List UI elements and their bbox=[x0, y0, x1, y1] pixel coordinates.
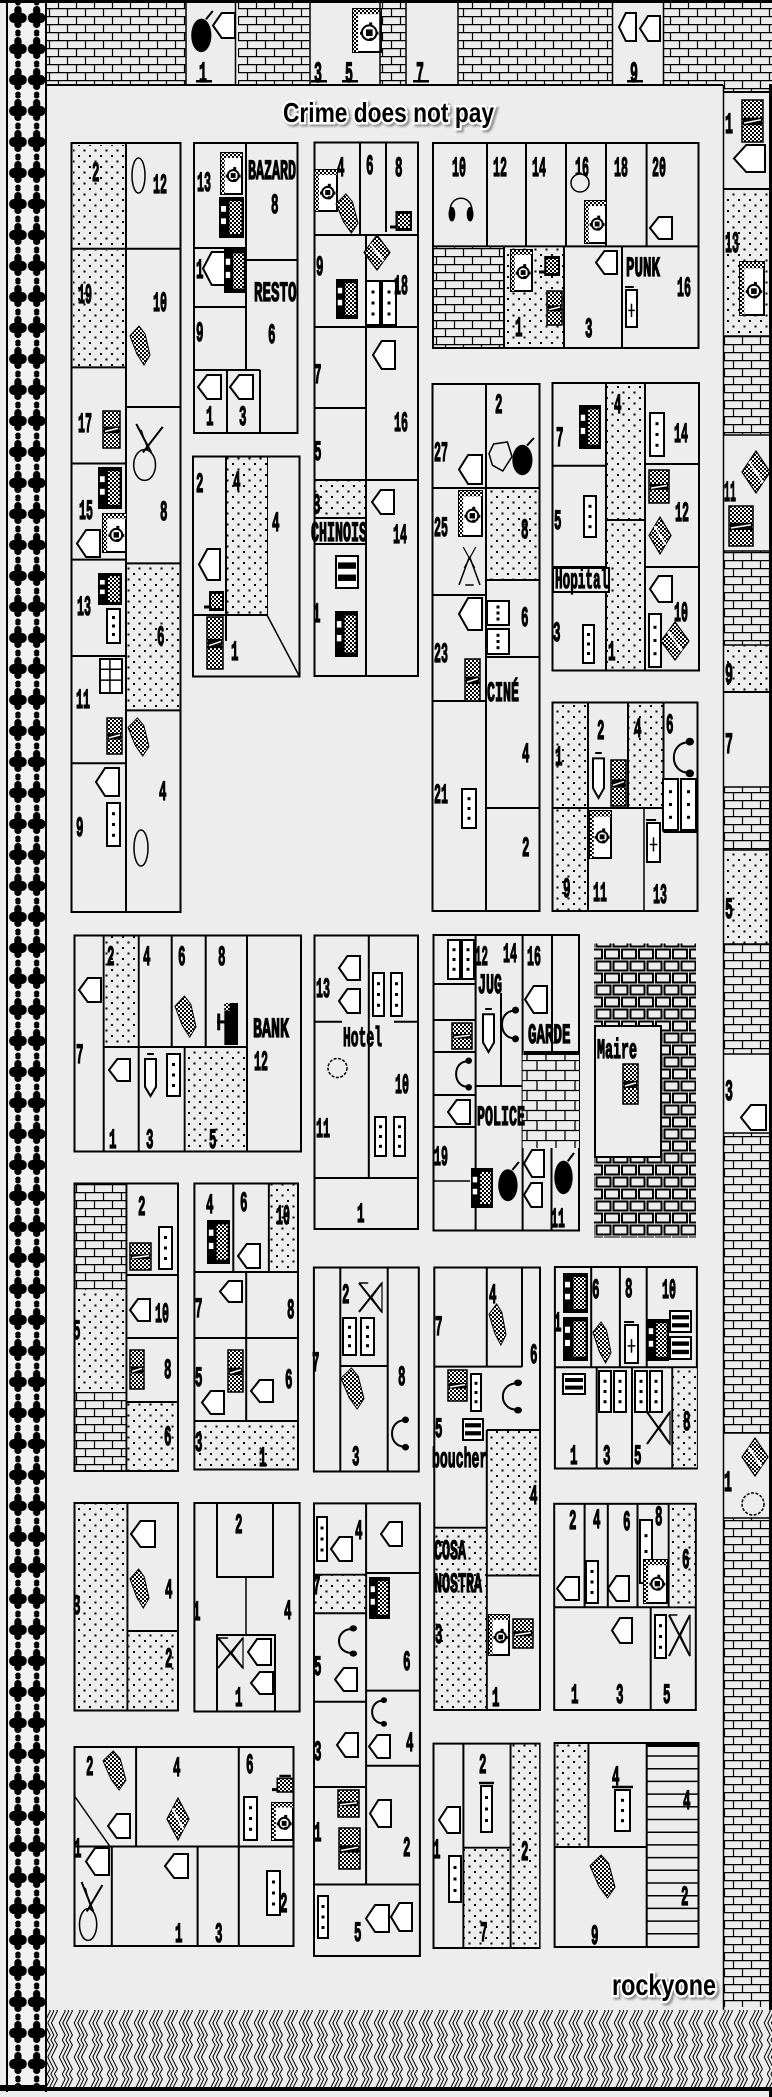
svg-text:19: 19 bbox=[78, 281, 92, 312]
svg-text:2: 2 bbox=[165, 1645, 173, 1676]
svg-text:3: 3 bbox=[585, 315, 593, 346]
svg-text:boucher: boucher bbox=[432, 1445, 487, 1476]
svg-text:BAZARD: BAZARD bbox=[248, 157, 296, 188]
svg-text:Hotel: Hotel bbox=[343, 1024, 382, 1055]
svg-text:5: 5 bbox=[195, 1364, 203, 1395]
svg-text:6: 6 bbox=[240, 1189, 248, 1220]
svg-text:6: 6 bbox=[666, 711, 674, 742]
svg-text:BANK: BANK bbox=[253, 1015, 289, 1046]
svg-text:23: 23 bbox=[434, 640, 448, 671]
svg-text:RESTO: RESTO bbox=[254, 279, 297, 310]
svg-text:Crime does not pay: Crime does not pay bbox=[283, 97, 494, 128]
svg-text:1: 1 bbox=[74, 1835, 82, 1866]
svg-text:9: 9 bbox=[725, 659, 733, 693]
svg-text:6: 6 bbox=[403, 1648, 411, 1679]
svg-text:2: 2 bbox=[196, 470, 204, 501]
svg-text:6: 6 bbox=[530, 1341, 538, 1372]
svg-text:13: 13 bbox=[653, 881, 667, 912]
svg-text:3: 3 bbox=[215, 1920, 223, 1951]
svg-text:3: 3 bbox=[195, 1429, 203, 1460]
svg-text:6: 6 bbox=[268, 321, 276, 352]
svg-text:12: 12 bbox=[153, 171, 167, 202]
svg-text:4: 4 bbox=[355, 1517, 363, 1548]
svg-text:1: 1 bbox=[571, 1681, 579, 1712]
svg-text:14: 14 bbox=[503, 940, 517, 971]
svg-text:5: 5 bbox=[314, 1653, 322, 1684]
svg-text:3: 3 bbox=[146, 1126, 154, 1157]
svg-text:4: 4 bbox=[593, 1506, 601, 1537]
svg-text:18: 18 bbox=[394, 272, 408, 303]
svg-text:7: 7 bbox=[556, 424, 564, 455]
svg-text:13: 13 bbox=[197, 169, 211, 200]
svg-text:8: 8 bbox=[395, 154, 403, 185]
svg-text:2: 2 bbox=[521, 1838, 529, 1869]
svg-text:2: 2 bbox=[681, 1883, 689, 1914]
svg-text:1: 1 bbox=[724, 1467, 732, 1501]
svg-text:12: 12 bbox=[675, 499, 689, 530]
svg-text:9: 9 bbox=[591, 1922, 599, 1953]
svg-text:2: 2 bbox=[86, 1753, 94, 1784]
svg-text:1: 1 bbox=[570, 1442, 578, 1473]
svg-text:4: 4 bbox=[284, 1597, 292, 1628]
svg-text:3: 3 bbox=[553, 619, 561, 650]
svg-text:10: 10 bbox=[395, 1071, 409, 1102]
svg-text:8: 8 bbox=[160, 498, 168, 529]
svg-text:2: 2 bbox=[495, 391, 503, 422]
svg-text:4: 4 bbox=[165, 1576, 173, 1607]
svg-text:5: 5 bbox=[663, 1681, 671, 1712]
svg-text:2: 2 bbox=[597, 717, 605, 748]
svg-text:3: 3 bbox=[239, 403, 247, 434]
svg-text:2: 2 bbox=[403, 1834, 411, 1865]
svg-text:NOSTRA: NOSTRA bbox=[434, 1570, 482, 1601]
svg-text:2: 2 bbox=[479, 1751, 487, 1782]
svg-text:14: 14 bbox=[393, 521, 407, 552]
svg-text:1: 1 bbox=[109, 1126, 117, 1157]
svg-text:9: 9 bbox=[316, 253, 324, 284]
svg-text:4: 4 bbox=[530, 1482, 538, 1513]
svg-text:6: 6 bbox=[164, 1423, 172, 1454]
svg-text:5: 5 bbox=[345, 58, 353, 92]
svg-text:6: 6 bbox=[285, 1366, 293, 1397]
svg-text:9: 9 bbox=[196, 319, 204, 350]
svg-text:1: 1 bbox=[199, 58, 207, 92]
svg-text:18: 18 bbox=[614, 154, 628, 185]
svg-text:1: 1 bbox=[314, 1819, 322, 1850]
svg-text:11: 11 bbox=[593, 879, 607, 910]
svg-text:5: 5 bbox=[725, 894, 733, 928]
svg-text:20: 20 bbox=[652, 154, 666, 185]
svg-text:16: 16 bbox=[527, 943, 541, 974]
svg-text:4: 4 bbox=[272, 509, 280, 540]
svg-text:CINÉ: CINÉ bbox=[487, 678, 519, 710]
svg-text:5: 5 bbox=[73, 1317, 81, 1348]
svg-text:COSA: COSA bbox=[434, 1537, 466, 1568]
svg-text:8: 8 bbox=[683, 1408, 691, 1439]
svg-text:19: 19 bbox=[434, 1143, 448, 1174]
svg-text:4: 4 bbox=[233, 468, 241, 499]
svg-text:3: 3 bbox=[313, 491, 321, 522]
svg-text:1: 1 bbox=[196, 256, 204, 287]
svg-text:3: 3 bbox=[725, 1076, 733, 1110]
svg-text:1: 1 bbox=[554, 1309, 562, 1340]
svg-text:13: 13 bbox=[77, 593, 91, 624]
svg-text:8: 8 bbox=[271, 191, 279, 222]
svg-text:12: 12 bbox=[493, 154, 507, 185]
svg-text:1: 1 bbox=[231, 638, 239, 669]
svg-text:7: 7 bbox=[480, 1919, 488, 1950]
svg-text:3: 3 bbox=[603, 1442, 611, 1473]
svg-text:2: 2 bbox=[569, 1507, 577, 1538]
svg-text:1: 1 bbox=[608, 638, 616, 669]
svg-text:1: 1 bbox=[259, 1444, 267, 1475]
svg-text:15: 15 bbox=[79, 497, 93, 528]
svg-text:5: 5 bbox=[354, 1919, 362, 1950]
svg-text:1: 1 bbox=[357, 1200, 365, 1231]
svg-text:3: 3 bbox=[616, 1681, 624, 1712]
svg-text:3: 3 bbox=[435, 1621, 443, 1652]
svg-text:13: 13 bbox=[316, 975, 330, 1006]
svg-text:6: 6 bbox=[157, 623, 165, 654]
svg-text:2: 2 bbox=[107, 943, 115, 974]
svg-text:9: 9 bbox=[76, 814, 84, 845]
svg-text:2: 2 bbox=[138, 1193, 146, 1224]
svg-text:8: 8 bbox=[398, 1363, 406, 1394]
svg-text:1: 1 bbox=[492, 1684, 500, 1715]
svg-text:6: 6 bbox=[366, 152, 374, 183]
svg-text:6: 6 bbox=[623, 1508, 631, 1539]
svg-text:5: 5 bbox=[554, 507, 562, 538]
svg-text:9: 9 bbox=[630, 58, 638, 92]
svg-text:3: 3 bbox=[314, 58, 322, 92]
svg-text:1: 1 bbox=[725, 109, 733, 143]
svg-text:16: 16 bbox=[394, 409, 408, 440]
svg-text:14: 14 bbox=[674, 420, 688, 451]
svg-text:4: 4 bbox=[173, 1754, 181, 1785]
svg-text:8: 8 bbox=[218, 943, 226, 974]
svg-text:8: 8 bbox=[287, 1296, 295, 1327]
svg-text:2: 2 bbox=[280, 1890, 288, 1921]
svg-text:7: 7 bbox=[313, 1572, 321, 1603]
svg-text:6: 6 bbox=[521, 604, 529, 635]
svg-text:1: 1 bbox=[235, 1684, 243, 1715]
svg-text:4: 4 bbox=[634, 715, 642, 746]
svg-text:5: 5 bbox=[314, 438, 322, 469]
svg-text:10: 10 bbox=[153, 289, 167, 320]
svg-text:1: 1 bbox=[313, 600, 321, 631]
svg-text:11: 11 bbox=[316, 1115, 330, 1146]
svg-text:7: 7 bbox=[195, 1295, 203, 1326]
svg-text:6: 6 bbox=[682, 1546, 690, 1577]
svg-text:10: 10 bbox=[276, 1202, 290, 1233]
svg-text:13: 13 bbox=[725, 228, 739, 262]
svg-text:2: 2 bbox=[342, 1281, 350, 1312]
svg-text:4: 4 bbox=[159, 778, 167, 809]
svg-text:5: 5 bbox=[435, 1415, 443, 1446]
svg-text:4: 4 bbox=[143, 943, 151, 974]
svg-text:4: 4 bbox=[683, 1787, 691, 1818]
svg-text:PUNK: PUNK bbox=[626, 254, 660, 285]
svg-text:CHINOIS: CHINOIS bbox=[311, 519, 367, 550]
svg-text:1: 1 bbox=[206, 403, 214, 434]
svg-text:1: 1 bbox=[555, 743, 563, 774]
svg-text:11: 11 bbox=[76, 686, 90, 717]
svg-text:8: 8 bbox=[655, 1503, 663, 1534]
svg-text:JUG: JUG bbox=[478, 971, 502, 1002]
svg-text:7: 7 bbox=[76, 1041, 84, 1072]
svg-text:6: 6 bbox=[178, 943, 186, 974]
svg-text:7: 7 bbox=[435, 1313, 443, 1344]
svg-text:4: 4 bbox=[522, 740, 530, 771]
svg-text:10: 10 bbox=[452, 154, 466, 185]
svg-text:2: 2 bbox=[522, 834, 530, 865]
svg-text:Hopital: Hopital bbox=[555, 566, 608, 597]
svg-text:10: 10 bbox=[155, 1300, 169, 1331]
svg-text:16: 16 bbox=[677, 274, 691, 305]
svg-text:27: 27 bbox=[434, 439, 448, 470]
svg-text:5: 5 bbox=[634, 1442, 642, 1473]
svg-text:2: 2 bbox=[92, 159, 100, 190]
svg-text:12: 12 bbox=[475, 943, 488, 974]
svg-text:7: 7 bbox=[312, 1349, 320, 1380]
svg-text:14: 14 bbox=[532, 154, 546, 185]
svg-text:17: 17 bbox=[78, 410, 92, 441]
svg-text:Maire: Maire bbox=[597, 1036, 637, 1067]
svg-text:4: 4 bbox=[206, 1191, 214, 1222]
svg-text:3: 3 bbox=[352, 1443, 360, 1474]
svg-text:4: 4 bbox=[337, 154, 345, 185]
svg-text:2: 2 bbox=[235, 1511, 243, 1542]
svg-text:1: 1 bbox=[433, 1836, 441, 1867]
svg-text:3: 3 bbox=[73, 1592, 81, 1623]
svg-text:GARDE: GARDE bbox=[528, 1021, 571, 1052]
svg-text:8: 8 bbox=[625, 1275, 633, 1306]
svg-text:5: 5 bbox=[209, 1126, 217, 1157]
svg-text:21: 21 bbox=[434, 781, 448, 812]
svg-text:6: 6 bbox=[592, 1276, 600, 1307]
svg-text:7: 7 bbox=[314, 361, 322, 392]
svg-text:10: 10 bbox=[662, 1276, 676, 1307]
svg-text:4: 4 bbox=[406, 1729, 414, 1760]
svg-text:8: 8 bbox=[521, 516, 529, 547]
svg-text:1: 1 bbox=[515, 314, 523, 345]
svg-text:11: 11 bbox=[551, 1205, 565, 1236]
svg-text:7: 7 bbox=[725, 729, 733, 763]
svg-text:4: 4 bbox=[614, 391, 622, 422]
svg-text:1: 1 bbox=[175, 1920, 183, 1951]
svg-text:rockyone: rockyone bbox=[612, 1969, 716, 2002]
svg-text:12: 12 bbox=[254, 1048, 268, 1079]
svg-text:8: 8 bbox=[164, 1356, 172, 1387]
svg-text:1: 1 bbox=[193, 1598, 201, 1629]
svg-text:25: 25 bbox=[434, 514, 448, 545]
svg-text:POLICE: POLICE bbox=[477, 1103, 525, 1134]
svg-text:6: 6 bbox=[246, 1751, 254, 1782]
svg-text:3: 3 bbox=[314, 1738, 322, 1769]
svg-text:9: 9 bbox=[563, 875, 571, 906]
svg-text:7: 7 bbox=[416, 58, 424, 92]
